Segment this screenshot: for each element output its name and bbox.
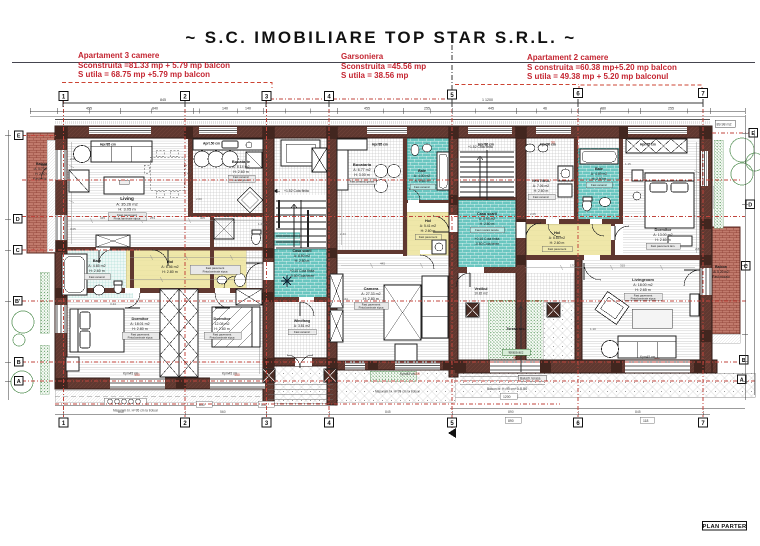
svg-text:H: 2.80 m: H: 2.80 m — [363, 297, 379, 301]
svg-text:Baie: Baie — [93, 258, 102, 263]
svg-text:Finta.laminate sipca: Finta.laminate sipca — [359, 305, 384, 309]
svg-text:Masuram br. H=95 cm la trotuar: Masuram br. H=95 cm la trotuar — [113, 409, 159, 413]
svg-text:terasa acc: terasa acc — [509, 351, 524, 355]
svg-text:S utila = 49.38 mp + 5.20 mp: S utila = 49.38 mp + 5.20 mp balconul — [527, 72, 668, 81]
svg-text:88: 88 — [452, 247, 456, 251]
svg-text:Fast ceramic: Fast ceramic — [591, 183, 608, 187]
svg-text:H: 2.65 m: H: 2.65 m — [635, 288, 651, 292]
svg-text:H: 2.80 m: H: 2.80 m — [295, 259, 310, 263]
svg-text:B': B' — [15, 299, 21, 305]
svg-text:12.08 m2: 12.08 m2 — [215, 322, 230, 326]
svg-text:A: 18.00 m2: A: 18.00 m2 — [633, 283, 652, 287]
svg-text:Hol: Hol — [167, 259, 173, 264]
svg-text:845: 845 — [635, 410, 641, 414]
svg-text:Dormitor: Dormitor — [214, 316, 231, 321]
svg-text:Dormitor: Dormitor — [132, 316, 149, 321]
svg-text:118: 118 — [643, 419, 649, 423]
svg-text:Hpr/85 cm: Hpr/85 cm — [372, 143, 388, 147]
svg-text:1.20: 1.20 — [452, 157, 458, 161]
svg-text:A: 8.50 m2: A: 8.50 m2 — [294, 254, 311, 258]
svg-text:E: E — [17, 134, 21, 140]
svg-text:10.82 m2: 10.82 m2 — [474, 292, 488, 296]
svg-text:480: 480 — [600, 107, 606, 111]
svg-text:Apartament 2 camere: Apartament 2 camere — [527, 53, 609, 62]
svg-text:3.05: 3.05 — [70, 227, 76, 231]
svg-text:E: E — [751, 131, 755, 137]
svg-text:255: 255 — [668, 107, 674, 111]
svg-text:A: 8.14 m2: A: 8.14 m2 — [232, 165, 249, 169]
svg-text:A: 27.33 m2: A: 27.33 m2 — [361, 292, 380, 296]
svg-text:-0.50 Cota teren: -0.50 Cota teren — [290, 274, 315, 278]
svg-text:890: 890 — [508, 419, 514, 423]
svg-text:46: 46 — [543, 107, 547, 111]
svg-text:~ S.C. IMOBILIARE TOP STAR S.R: ~ S.C. IMOBILIARE TOP STAR S.R.L. ~ — [185, 28, 576, 47]
svg-text:Bucataria: Bucataria — [353, 162, 372, 167]
svg-text:Fast pavement lam.: Fast pavement lam. — [651, 244, 676, 248]
svg-text:Balustr. terasa: Balustr. terasa — [520, 377, 541, 381]
svg-text:A: 6.77 m2: A: 6.77 m2 — [353, 168, 370, 172]
svg-text:Fast mozaic: Fast mozaic — [712, 275, 730, 279]
svg-text:H: 2.60 m: H: 2.60 m — [655, 238, 671, 242]
svg-text:Casa scarii: Casa scarii — [477, 212, 497, 216]
svg-text:Finta.laminate sipca: Finta.laminate sipca — [210, 335, 235, 339]
svg-text:Masuram br. H=95 cm la trotuar: Masuram br. H=95 cm la trotuar — [375, 389, 421, 393]
svg-text:H: 2.80 m: H: 2.80 m — [162, 270, 178, 274]
svg-text:A: 18.01 m2: A: 18.01 m2 — [130, 322, 149, 326]
svg-text:B: B — [17, 360, 21, 366]
svg-text:-0.50 Cota teren: -0.50 Cota teren — [475, 242, 500, 246]
svg-text:Kpm45 cm: Kpm45 cm — [400, 372, 416, 376]
svg-text:Kpm45 cm: Kpm45 cm — [123, 372, 139, 376]
svg-text:D: D — [16, 217, 20, 223]
svg-text:Fast ceramic: Fast ceramic — [89, 275, 106, 279]
svg-text:90: 90 — [513, 356, 517, 360]
svg-text:170: 170 — [570, 263, 575, 267]
svg-text:Balcon: Balcon — [715, 265, 727, 269]
svg-text:C: C — [16, 248, 20, 254]
svg-text:2.05: 2.05 — [530, 212, 536, 216]
svg-text:1.15: 1.15 — [625, 162, 631, 166]
svg-text:H: 2.80 m: H: 2.80 m — [480, 222, 495, 226]
svg-text:H: 2.60 m: H: 2.60 m — [89, 269, 105, 273]
svg-text:2.60: 2.60 — [196, 197, 202, 201]
svg-text:H: 2.60 m: H: 2.60 m — [592, 177, 607, 181]
svg-text:+0.10 Cota finita: +0.10 Cota finita — [290, 269, 315, 273]
svg-text:445: 445 — [380, 261, 385, 265]
svg-text:Hpr/85 cm: Hpr/85 cm — [100, 143, 116, 147]
svg-text:845: 845 — [160, 98, 166, 102]
svg-text:Casa scarii: Casa scarii — [293, 249, 312, 253]
svg-text:VESTIBUL: VESTIBUL — [532, 179, 551, 183]
svg-text:3.44: 3.44 — [110, 302, 116, 306]
svg-text:845: 845 — [385, 410, 391, 414]
svg-text:H: 2.80 m: H: 2.80 m — [132, 327, 148, 331]
svg-text:H: 2.60 m: H: 2.60 m — [421, 229, 436, 233]
svg-text:Fast ceramic: Fast ceramic — [294, 330, 311, 334]
svg-text:A: 4.00 m2: A: 4.00 m2 — [414, 174, 431, 178]
svg-text:840: 840 — [152, 107, 158, 111]
svg-text:1.25: 1.25 — [258, 222, 264, 226]
svg-text:A: 6.56 m2: A: 6.56 m2 — [161, 265, 178, 269]
svg-text:Fast ceramic: Fast ceramic — [533, 195, 550, 199]
svg-text:Terasa acc.: Terasa acc. — [506, 327, 525, 331]
svg-text:445: 445 — [488, 107, 494, 111]
svg-text:Garsoniera: Garsoniera — [341, 52, 384, 61]
svg-text:560: 560 — [220, 410, 226, 414]
svg-text:2.80: 2.80 — [695, 247, 701, 251]
svg-text:Fast pavement: Fast pavement — [548, 247, 567, 251]
svg-text:A: A — [17, 379, 21, 385]
svg-text:A: 4.89 m2: A: 4.89 m2 — [591, 172, 608, 176]
svg-text:1.10: 1.10 — [590, 327, 596, 331]
svg-text:PLAN PARTER: PLAN PARTER — [702, 524, 747, 530]
svg-text:Kpm45 cm: Kpm45 cm — [222, 372, 238, 376]
svg-text:Dormitor: Dormitor — [655, 227, 672, 232]
svg-text:H: 2.60 m: H: 2.60 m — [550, 241, 565, 245]
svg-text:455: 455 — [364, 107, 370, 111]
svg-text:Baie: Baie — [595, 167, 603, 171]
svg-text:2.44: 2.44 — [340, 232, 346, 236]
svg-text:A: 13.00 m2: A: 13.00 m2 — [653, 233, 672, 237]
svg-text:A: 3.81 m2: A: 3.81 m2 — [294, 324, 311, 328]
svg-text:140: 140 — [222, 107, 228, 111]
svg-text:1200: 1200 — [503, 395, 511, 399]
svg-text:A: 7.06 m2: A: 7.06 m2 — [533, 184, 550, 188]
svg-text:+1.52 Cota finita: +1.52 Cota finita — [284, 189, 309, 193]
svg-text:1 1200: 1 1200 — [482, 98, 493, 102]
svg-text:530: 530 — [261, 403, 267, 407]
svg-text:Hpr/90 cm: Hpr/90 cm — [540, 143, 556, 147]
svg-text:A: 4.93 m2: A: 4.93 m2 — [479, 217, 496, 221]
svg-text:Hpr/86 cm: Hpr/86 cm — [478, 143, 494, 147]
svg-text:255: 255 — [424, 107, 430, 111]
svg-text:D: D — [748, 203, 752, 209]
svg-text:A: 6.65 m2: A: 6.65 m2 — [549, 236, 566, 240]
svg-text:Camera: Camera — [364, 286, 379, 291]
svg-text:Baie: Baie — [418, 169, 426, 173]
svg-text:S utila = 68.75 mp +5.79 mp ba: S utila = 68.75 mp +5.79 mp balcon — [78, 70, 210, 79]
svg-text:A: 5.20 m2: A: 5.20 m2 — [713, 270, 729, 274]
svg-text:A: A — [740, 378, 744, 384]
svg-text:890: 890 — [508, 410, 514, 414]
svg-text:S construita =60.38 mp+5.20 mp: S construita =60.38 mp+5.20 mp balcon — [527, 63, 677, 72]
svg-text:Fast ceramic: Fast ceramic — [414, 185, 431, 189]
svg-text:Fast pavement: Fast pavement — [419, 235, 438, 239]
svg-text:Hol: Hol — [425, 219, 431, 223]
svg-text:+0.10 Cota finita: +0.10 Cota finita — [475, 237, 500, 241]
svg-text:A: 4.65 m2: A: 4.65 m2 — [88, 264, 105, 268]
svg-text:H: 2.60 m: H: 2.60 m — [415, 179, 430, 183]
svg-text:Aprt.50 cm: Aprt.50 cm — [203, 142, 220, 146]
svg-text:Windfang: Windfang — [294, 319, 310, 323]
svg-text:Balcon br. H=95 cm+A-B-B6: Balcon br. H=95 cm+A-B-B6 — [487, 387, 527, 391]
svg-text:H: 3.05 m: H: 3.05 m — [118, 207, 136, 212]
svg-text:Finta.laminate sipca: Finta.laminate sipca — [203, 270, 228, 274]
svg-text:S utila = 38.56 mp: S utila = 38.56 mp — [341, 71, 408, 80]
svg-text:Hol: Hol — [554, 231, 560, 235]
svg-text:Sconstruita =45.56 mp: Sconstruita =45.56 mp — [341, 62, 426, 71]
svg-text:89.98 m2: 89.98 m2 — [717, 122, 732, 126]
svg-text:Finta.laminate sipca: Finta.laminate sipca — [128, 335, 153, 339]
svg-text:Vestibul: Vestibul — [474, 287, 487, 291]
svg-text:Livingroom: Livingroom — [632, 277, 654, 282]
svg-text:H: 3.00 m: H: 3.00 m — [354, 173, 370, 177]
svg-text:Living: Living — [120, 196, 134, 201]
svg-text:315: 315 — [620, 263, 625, 267]
svg-text:140: 140 — [245, 107, 251, 111]
svg-text:Apartament 3 camere: Apartament 3 camere — [78, 51, 160, 60]
svg-text:Fast mozaic teraze: Fast mozaic teraze — [475, 228, 499, 232]
svg-text:H: 2.60 m: H: 2.60 m — [534, 189, 549, 193]
svg-text:H: 2.80 m: H: 2.80 m — [214, 327, 230, 331]
svg-text:Bucatarie: Bucatarie — [232, 159, 251, 164]
svg-text:Finta.laminate sipca: Finta.laminate sipca — [631, 296, 656, 300]
svg-text:A: 5.41 m2: A: 5.41 m2 — [420, 224, 437, 228]
svg-text:Hpr/85 cm: Hpr/85 cm — [640, 143, 656, 147]
svg-text:Sconstruita =81.33 mp + 5.79 m: Sconstruita =81.33 mp + 5.79 mp balcon — [78, 61, 230, 70]
svg-text:Balcon: Balcon — [36, 162, 48, 166]
svg-text:Finta.laminate sipca: Finta.laminate sipca — [114, 217, 141, 221]
svg-text:830: 830 — [199, 403, 205, 407]
svg-text:H: 2.60 m: H: 2.60 m — [233, 170, 249, 174]
svg-text:Kpm45 cm: Kpm45 cm — [640, 355, 656, 359]
